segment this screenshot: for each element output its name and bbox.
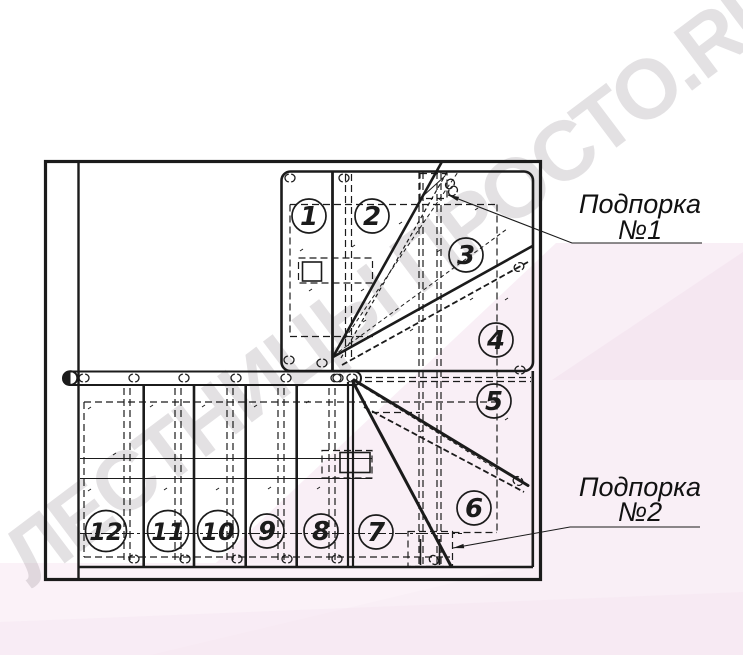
fastener-icon <box>339 174 349 182</box>
fastener-icon <box>281 374 291 382</box>
fastener-icon <box>332 555 342 563</box>
fastener-icon <box>284 356 294 364</box>
support-1-label-line2: №1 <box>618 215 662 245</box>
support-2-leader-line <box>453 527 700 548</box>
step-number-10: 10 <box>201 518 234 546</box>
step-number-4: 4 <box>486 326 505 356</box>
step-number-12: 12 <box>89 518 122 546</box>
step-number-1: 1 <box>300 202 318 232</box>
step-number-11: 11 <box>151 518 184 546</box>
step-number-9: 9 <box>258 517 276 547</box>
staircase-plan-screenshot: ЛЕСТНИЦЫ ПРОСТО.RU <box>0 0 743 655</box>
step-numbers: 123456789101112 <box>86 199 514 552</box>
fastener-icon <box>428 554 441 566</box>
step-number-7: 7 <box>367 518 386 548</box>
step-number-6: 6 <box>465 494 483 524</box>
fastener-icon <box>444 178 456 191</box>
step-number-3: 3 <box>457 241 475 271</box>
fastener-icon <box>285 174 295 182</box>
step-number-2: 2 <box>363 202 381 232</box>
support-callouts: Подпорка№1Подпорка№2 <box>448 189 702 548</box>
support-2-arrowhead-icon <box>453 544 464 548</box>
step-number-8: 8 <box>312 517 330 547</box>
fastener-icon <box>179 374 189 382</box>
newel-post-lower <box>340 453 370 473</box>
staircase-drawing: 123456789101112 Подпорка№1Подпорка№2 <box>0 0 743 655</box>
fastener-icon <box>317 359 327 367</box>
fastener-icon <box>129 374 139 382</box>
support-2-label-line2: №2 <box>618 497 662 527</box>
step-number-5: 5 <box>485 387 503 417</box>
newel-post-upper <box>303 262 322 281</box>
support1-hatch <box>423 176 445 196</box>
fastener-icon <box>79 374 89 382</box>
handrail <box>63 372 361 386</box>
fastener-icon <box>231 374 241 382</box>
